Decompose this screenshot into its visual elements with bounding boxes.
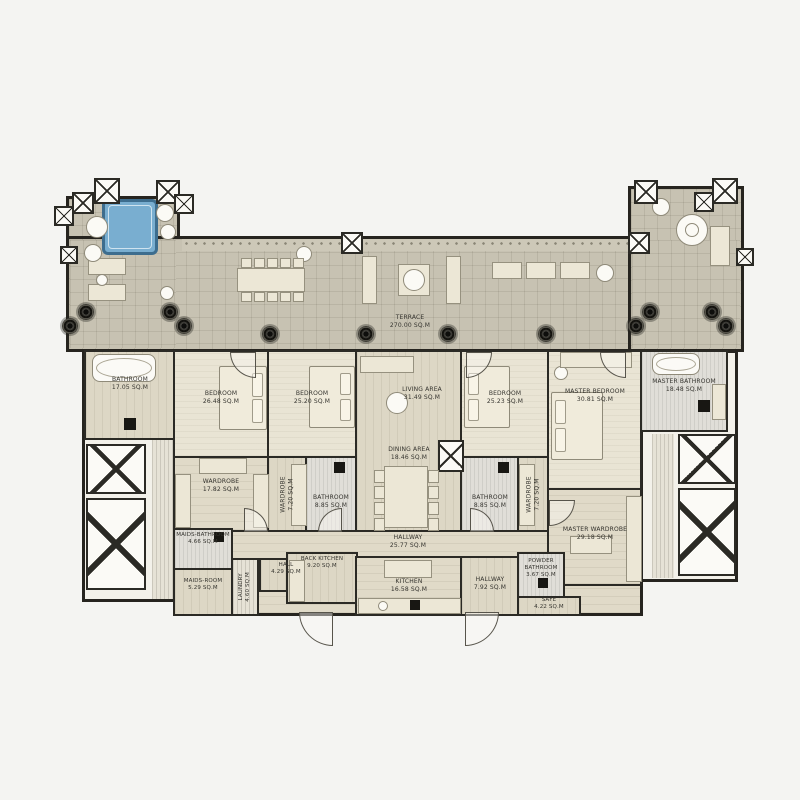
label-dining-area: DINING AREA18.46 SQ.M	[378, 446, 440, 461]
label-maids-room: MAIDS-ROOM5.29 SQ.M	[177, 578, 229, 592]
stove	[410, 600, 420, 610]
elevator-shaft-icon	[86, 444, 146, 494]
label-bathroom-1: BATHROOM17.05 SQ.M	[90, 376, 170, 391]
planter-icon	[84, 244, 102, 262]
terrace-planter-railing	[182, 237, 628, 251]
bath-mat	[124, 418, 136, 430]
label-bathroom-2: BATHROOM8.85 SQ.M	[307, 494, 355, 509]
speaker-icon	[262, 326, 278, 342]
column-marker-icon	[54, 206, 74, 226]
dining-chair	[428, 470, 439, 483]
bathtub	[652, 353, 700, 375]
label-bedroom-3: BEDROOM25.23 SQ.M	[465, 390, 545, 405]
sun-lounger	[88, 284, 126, 301]
bathtub-basin	[656, 357, 696, 371]
label-master-bathroom: MASTER BATHROOM18.48 SQ.M	[642, 378, 726, 393]
bath-mat	[698, 400, 710, 412]
outdoor-sofa	[560, 262, 590, 279]
label-hallway-2: HALLWAY7.92 SQ.M	[464, 576, 516, 591]
dining-chair	[428, 486, 439, 499]
sofa	[360, 356, 414, 373]
outdoor-sofa	[362, 256, 377, 304]
outdoor-chair	[267, 258, 278, 268]
column-marker-icon	[634, 180, 658, 204]
floor-plan-page: { "title": "Apartment Floor Plan", "colo…	[0, 0, 800, 800]
bath-mat	[334, 462, 345, 473]
door-arc-icon	[299, 612, 333, 646]
dining-chair	[374, 518, 385, 531]
column-marker-icon	[736, 248, 754, 266]
door-arc-icon	[465, 612, 499, 646]
kitchen-island	[384, 560, 432, 578]
label-wardrobe-2: WARDROBE7.20 SQ.M	[280, 460, 295, 530]
outdoor-sofa	[492, 262, 522, 279]
outdoor-sofa	[446, 256, 461, 304]
label-wardrobe-1: WARDROBE17.82 SQ.M	[181, 478, 261, 493]
closet	[199, 458, 247, 474]
jacuzzi	[102, 199, 158, 255]
label-kitchen: KITCHEN16.58 SQ.M	[381, 578, 437, 593]
outdoor-dining-table	[237, 268, 305, 292]
dining-chair	[428, 502, 439, 515]
outdoor-chair	[267, 292, 278, 302]
column-marker-icon	[694, 192, 714, 212]
outdoor-sofa	[526, 262, 556, 279]
label-hallway-main: HALLWAY25.77 SQ.M	[372, 534, 444, 549]
outdoor-cabinet	[710, 226, 730, 266]
label-powder-bathroom: POWDER BATHROOM3.67 SQ.M	[519, 558, 563, 579]
outdoor-chair	[293, 292, 304, 302]
column-marker-icon	[341, 232, 363, 254]
speaker-icon	[704, 304, 720, 320]
elevator-shaft-icon	[86, 498, 146, 590]
column-marker-icon	[72, 192, 94, 214]
label-master-wardrobe: MASTER WARDROBE29.18 SQ.M	[553, 526, 637, 541]
planter-icon	[160, 286, 174, 300]
label-master-bedroom: MASTER BEDROOM30.81 SQ.M	[551, 388, 639, 403]
speaker-icon	[358, 326, 374, 342]
label-safe: SAFE4.22 SQ.M	[527, 597, 571, 611]
floor-plan: TERRACE270.00 SQ.M BATHROOM17.05 SQ.M BE…	[0, 0, 800, 800]
label-laundry: LAUNDRY4.60 SQ.M	[238, 552, 252, 622]
outdoor-chair	[280, 258, 291, 268]
pillow	[555, 400, 566, 424]
side-table	[96, 274, 108, 286]
shaft-icon	[438, 440, 464, 472]
room-maids-room	[173, 568, 233, 616]
elevator-shaft-icon	[678, 488, 736, 576]
jacuzzi-inner	[108, 205, 152, 249]
label-maids-bathroom: MAIDS-BATHROOM4.66 SQ.M	[176, 532, 230, 546]
outdoor-chair	[241, 292, 252, 302]
planter-icon	[160, 224, 176, 240]
outdoor-chair	[280, 292, 291, 302]
speaker-icon	[538, 326, 554, 342]
kitchen-sink	[378, 601, 388, 611]
column-marker-icon	[712, 178, 738, 204]
outdoor-chair	[293, 258, 304, 268]
speaker-icon	[628, 318, 644, 334]
label-bedroom-2: BEDROOM25.20 SQ.M	[272, 390, 352, 405]
dining-table	[384, 466, 428, 528]
dining-chair	[374, 502, 385, 515]
outdoor-chair	[254, 258, 265, 268]
label-living-area: LIVING AREA31.49 SQ.M	[381, 386, 463, 401]
stool	[554, 366, 568, 380]
speaker-icon	[176, 318, 192, 334]
pillow	[555, 428, 566, 452]
elevator-shaft-icon	[678, 434, 736, 484]
speaker-icon	[62, 318, 78, 334]
right-wing-corridor	[652, 434, 674, 578]
dining-chair	[374, 486, 385, 499]
speaker-icon	[162, 304, 178, 320]
column-marker-icon	[174, 194, 194, 214]
planter-icon	[86, 216, 108, 238]
bathtub-basin	[96, 358, 152, 378]
label-bathroom-3: BATHROOM8.85 SQ.M	[464, 494, 516, 509]
dining-chair	[428, 518, 439, 531]
outdoor-coffee-table-top	[403, 269, 425, 291]
column-marker-icon	[60, 246, 78, 264]
label-terrace: TERRACE270.00 SQ.M	[375, 314, 445, 329]
label-wardrobe-3: WARDROBE7.20 SQ.M	[526, 460, 541, 530]
column-marker-icon	[94, 178, 120, 204]
side-table	[596, 264, 614, 282]
bath-mat	[498, 462, 509, 473]
column-marker-icon	[628, 232, 650, 254]
planter-icon	[156, 204, 174, 222]
bath-mat	[538, 578, 548, 588]
outdoor-chair	[241, 258, 252, 268]
dining-chair	[374, 470, 385, 483]
label-back-kitchen: BACK KITCHEN9.20 SQ.M	[289, 556, 355, 570]
speaker-icon	[718, 318, 734, 334]
label-bedroom-1: BEDROOM26.48 SQ.M	[181, 390, 261, 405]
outdoor-chair	[254, 292, 265, 302]
speaker-icon	[78, 304, 94, 320]
round-table-center	[685, 223, 699, 237]
speaker-icon	[642, 304, 658, 320]
